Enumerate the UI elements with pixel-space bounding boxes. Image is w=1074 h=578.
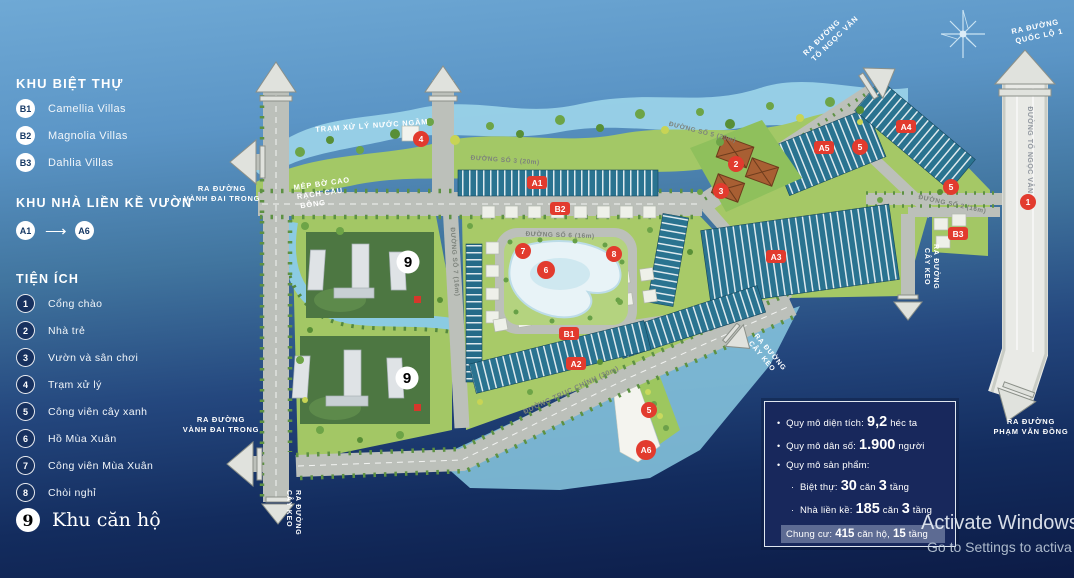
svg-text:4: 4 xyxy=(419,134,424,144)
badge-a3: A3 xyxy=(766,250,786,263)
label-exit-cay-keo-left: RA ĐƯỜNG CÂY KEO xyxy=(285,490,303,536)
marker-9-top: 9 xyxy=(397,251,420,274)
legend-villa-row-b3: B3 Dahlia Villas xyxy=(16,153,128,172)
stat-population-label: Quy mô dân số: xyxy=(786,441,856,452)
svg-text:8: 8 xyxy=(612,249,617,259)
svg-text:A5: A5 xyxy=(819,143,830,153)
marker-6: 6 xyxy=(537,261,555,279)
badge-b3: B3 xyxy=(948,227,968,240)
amenity-row-1: 1Cổng chào xyxy=(16,294,161,313)
svg-text:1: 1 xyxy=(1026,197,1031,207)
stat-apartment-unit: tầng xyxy=(909,529,928,540)
stat-products-label: Quy mô sản phẩm: xyxy=(786,460,869,471)
amenity-label-2: Nhà trẻ xyxy=(48,325,85,337)
marker-3: 3 xyxy=(713,183,729,199)
stat-villas-unit: tầng xyxy=(890,482,909,493)
amenity-label-3: Vườn và sân chơi xyxy=(48,352,138,364)
svg-text:B2: B2 xyxy=(555,204,566,214)
svg-text:5: 5 xyxy=(647,405,652,415)
amenity-label-7: Công viên Mùa Xuân xyxy=(48,460,153,472)
svg-text:9: 9 xyxy=(403,370,411,387)
label-exit-quoc-lo-1: RA ĐƯỜNG QUỐC LỘ 1 xyxy=(1011,17,1064,46)
legend-range-row: A1 ⟶ A6 xyxy=(16,221,192,240)
sub-bullet-icon: · xyxy=(791,482,794,492)
amenity-label-5: Công viên cây xanh xyxy=(48,406,147,418)
amenity-num-7: 7 xyxy=(16,456,35,475)
amenity-row-2: 2Nhà trẻ xyxy=(16,321,161,340)
marker-5b: 5 xyxy=(943,179,959,195)
apartment-block-1 xyxy=(306,232,434,318)
legend-villas-title: KHU BIỆT THỰ xyxy=(16,76,128,91)
svg-text:RA ĐƯỜNG: RA ĐƯỜNG xyxy=(197,415,245,424)
badge-b1: B1 xyxy=(559,327,579,340)
legend-villa-row-b2: B2 Magnolia Villas xyxy=(16,126,128,145)
svg-text:9: 9 xyxy=(404,254,412,271)
range-arrow-icon: ⟶ xyxy=(45,222,65,240)
arrow-up-quoc-lo xyxy=(995,50,1055,96)
badge-a1: A1 xyxy=(527,176,547,189)
stat-villas-count: 30 xyxy=(841,478,857,494)
svg-text:VÀNH ĐAI TRONG: VÀNH ĐAI TRONG xyxy=(184,194,261,203)
svg-text:CÂY KEO: CÂY KEO xyxy=(285,490,294,527)
stat-villas-label: Biệt thự: xyxy=(800,482,838,493)
amenity-num-9: 9 xyxy=(16,508,40,532)
badge-b2: B2 xyxy=(550,202,570,215)
amenity-num-4: 4 xyxy=(16,375,35,394)
svg-text:3: 3 xyxy=(719,186,724,196)
svg-text:A3: A3 xyxy=(771,252,782,262)
svg-text:A6: A6 xyxy=(641,445,652,455)
bullet-icon: • xyxy=(777,418,780,428)
svg-text:RA ĐƯỜNG: RA ĐƯỜNG xyxy=(294,490,303,536)
amenity-row-9: 9 Khu căn hộ xyxy=(16,508,161,532)
stat-townhouse-label: Nhà liền kề: xyxy=(800,505,853,516)
label-exit-to-ngoc-van: RA ĐƯỜNG TỐ NGỌC VÂN xyxy=(801,7,860,65)
stat-area-unit: héc ta xyxy=(890,418,917,429)
legend-townhouse-section: KHU NHÀ LIỀN KỀ VƯỜN A1 ⟶ A6 xyxy=(16,196,192,240)
svg-text:RA ĐƯỜNG: RA ĐƯỜNG xyxy=(932,244,941,290)
amenity-label-4: Trạm xử lý xyxy=(48,379,102,391)
marker-7: 7 xyxy=(515,243,531,259)
stat-area-row: • Quy mô diện tích: 9,2 héc ta xyxy=(777,414,945,430)
marker-5a: 5 xyxy=(852,139,868,155)
stat-villas-row: · Biệt thự: 30 căn 3 tầng xyxy=(791,478,945,494)
stat-area-value: 9,2 xyxy=(867,414,887,430)
badge-b1-legend: B1 xyxy=(16,99,35,118)
legend-villas-section: KHU BIỆT THỰ B1 Camellia Villas B2 Magno… xyxy=(16,76,128,172)
svg-text:A4: A4 xyxy=(901,122,912,132)
stat-townhouse-mid: căn xyxy=(883,505,899,516)
amenity-label-9: Khu căn hộ xyxy=(52,509,161,531)
badge-a4: A4 xyxy=(896,120,916,133)
svg-text:RA ĐƯỜNG: RA ĐƯỜNG xyxy=(198,184,246,193)
amenity-row-8: 8Chòi nghỉ xyxy=(16,483,161,502)
stat-villas-mid: căn xyxy=(860,482,876,493)
svg-text:CÂY KEO: CÂY KEO xyxy=(923,248,932,285)
stat-villas-floors: 3 xyxy=(879,478,887,494)
amenity-num-3: 3 xyxy=(16,348,35,367)
legend-townhouse-title: KHU NHÀ LIỀN KỀ VƯỜN xyxy=(16,196,192,210)
amenity-row-3: 3Vườn và sân chơi xyxy=(16,348,161,367)
amenity-label-8: Chòi nghỉ xyxy=(48,487,96,499)
villa-label-magnolia: Magnolia Villas xyxy=(48,130,128,142)
svg-text:B1: B1 xyxy=(564,329,575,339)
svg-text:5: 5 xyxy=(949,182,954,192)
stat-apartment-mid: căn hộ, xyxy=(857,529,890,540)
badge-a6-legend: A6 xyxy=(75,221,94,240)
villa-label-dahlia: Dahlia Villas xyxy=(48,157,114,169)
amenity-num-8: 8 xyxy=(16,483,35,502)
marker-2: 2 xyxy=(728,156,744,172)
stat-townhouse-unit: tầng xyxy=(913,505,932,516)
amenity-num-1: 1 xyxy=(16,294,35,313)
sub-bullet-icon: · xyxy=(791,505,794,515)
marker-5c: 5 xyxy=(641,402,657,418)
stat-population-unit: người xyxy=(898,441,924,452)
legend-villa-row-b1: B1 Camellia Villas xyxy=(16,99,128,118)
arrow-left-vanh-dai-top xyxy=(230,140,265,184)
villa-label-camellia: Camellia Villas xyxy=(48,103,126,115)
stat-apartment-strip: Chung cư: 415 căn hộ, 15 tầng xyxy=(781,525,945,543)
amenity-row-6: 6Hồ Mùa Xuân xyxy=(16,429,161,448)
amenity-num-6: 6 xyxy=(16,429,35,448)
legend-amenities-title: TIỆN ÍCH xyxy=(16,272,161,286)
badge-a5: A5 xyxy=(814,141,834,154)
stat-area-label: Quy mô diện tích: xyxy=(786,418,864,429)
badge-a2: A2 xyxy=(566,357,586,370)
amenity-row-5: 5Công viên cây xanh xyxy=(16,402,161,421)
legend-amenities-section: TIỆN ÍCH 1Cổng chào 2Nhà trẻ 3Vườn và sâ… xyxy=(16,272,161,532)
bullet-icon: • xyxy=(777,460,780,470)
badge-b3-legend: B3 xyxy=(16,153,35,172)
svg-text:VÀNH ĐAI TRONG: VÀNH ĐAI TRONG xyxy=(183,425,260,434)
marker-4: 4 xyxy=(413,131,429,147)
stat-population-value: 1.900 xyxy=(859,437,895,453)
marker-8: 8 xyxy=(606,246,622,262)
stat-townhouse-row: · Nhà liền kề: 185 căn 3 tầng xyxy=(791,501,945,517)
svg-text:RA ĐƯỜNG: RA ĐƯỜNG xyxy=(1007,417,1055,426)
amenity-num-2: 2 xyxy=(16,321,35,340)
svg-text:5: 5 xyxy=(858,142,863,152)
svg-text:B3: B3 xyxy=(953,229,964,239)
label-exit-vanh-dai-bottom: RA ĐƯỜNG VÀNH ĐAI TRONG xyxy=(183,415,260,434)
arrow-up-mid-road xyxy=(425,66,461,101)
label-exit-pham-van-dong: RA ĐƯỜNG PHẠM VĂN ĐỒNG xyxy=(994,417,1069,436)
stat-population-row: • Quy mô dân số: 1.900 người xyxy=(777,437,945,453)
marker-1: 1 xyxy=(1020,194,1036,210)
stat-products-row: • Quy mô sản phẩm: xyxy=(777,460,945,471)
stat-townhouse-count: 185 xyxy=(856,501,880,517)
svg-text:A2: A2 xyxy=(571,359,582,369)
badge-a1-legend: A1 xyxy=(16,221,35,240)
svg-text:PHẠM VĂN ĐỒNG: PHẠM VĂN ĐỒNG xyxy=(994,426,1069,436)
svg-text:A1: A1 xyxy=(532,178,543,188)
badge-a6: A6 xyxy=(636,440,656,460)
road-to-ngoc-van xyxy=(992,80,1046,402)
amenity-label-1: Cổng chào xyxy=(48,298,102,310)
amenity-num-5: 5 xyxy=(16,402,35,421)
bullet-icon: • xyxy=(777,441,780,451)
svg-text:2: 2 xyxy=(734,159,739,169)
stat-apartment-count: 415 xyxy=(835,528,854,540)
compass-rose xyxy=(941,10,985,58)
project-stats-box: • Quy mô diện tích: 9,2 héc ta • Quy mô … xyxy=(764,401,956,547)
svg-text:7: 7 xyxy=(521,246,526,256)
stat-apartment-floors: 15 xyxy=(893,528,906,540)
amenity-label-6: Hồ Mùa Xuân xyxy=(48,433,117,445)
arrow-down-cay-keo-right xyxy=(894,295,922,320)
marker-9-bottom: 9 xyxy=(396,367,419,390)
badge-b2-legend: B2 xyxy=(16,126,35,145)
masterplan-screenshot: ĐƯỜNG SỐ 3 (20m) ĐƯỜNG SỐ 5 (20m) ĐƯỜNG … xyxy=(0,0,1074,578)
stat-townhouse-floors: 3 xyxy=(902,501,910,517)
label-exit-vanh-dai-top: RA ĐƯỜNG VÀNH ĐAI TRONG xyxy=(184,184,261,203)
stat-apartment-label: Chung cư: xyxy=(786,529,832,540)
amenity-row-7: 7Công viên Mùa Xuân xyxy=(16,456,161,475)
amenity-row-4: 4Trạm xử lý xyxy=(16,375,161,394)
svg-text:6: 6 xyxy=(544,265,549,275)
arrow-left-vanh-dai-bottom xyxy=(227,442,262,486)
